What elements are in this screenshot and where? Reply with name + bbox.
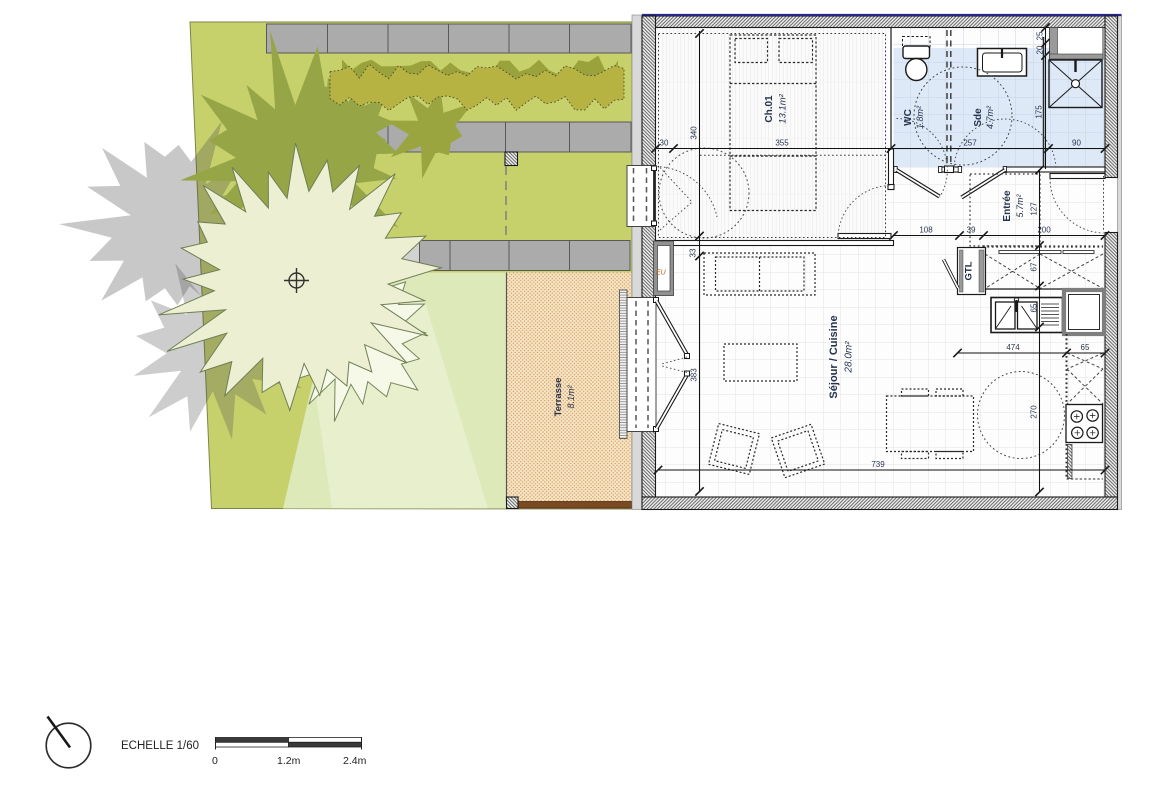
svg-text:28.0m²: 28.0m² (844, 341, 855, 374)
svg-text:20: 20 (1036, 45, 1045, 54)
svg-text:257: 257 (963, 139, 977, 148)
svg-text:8.1m²: 8.1m² (566, 384, 576, 408)
svg-text:0: 0 (212, 755, 218, 767)
svg-text:Terrasse: Terrasse (553, 378, 564, 417)
svg-text:90: 90 (1072, 139, 1081, 148)
svg-text:383: 383 (690, 368, 699, 382)
svg-text:340: 340 (690, 126, 699, 140)
svg-text:5.7m²: 5.7m² (1015, 193, 1025, 217)
svg-text:175: 175 (1035, 105, 1044, 119)
svg-text:474: 474 (1006, 343, 1020, 352)
svg-text:33: 33 (689, 248, 698, 257)
svg-text:67: 67 (1030, 262, 1039, 271)
svg-text:13.1m²: 13.1m² (778, 93, 789, 123)
svg-text:270: 270 (1030, 405, 1039, 419)
svg-text:1.2m: 1.2m (277, 755, 301, 767)
svg-text:65: 65 (1081, 343, 1090, 352)
svg-text:Entrée: Entrée (1002, 190, 1013, 222)
svg-text:2.4m: 2.4m (343, 755, 367, 767)
svg-text:127: 127 (1030, 202, 1039, 216)
svg-text:65: 65 (1030, 303, 1039, 312)
svg-text:GTL: GTL (964, 261, 975, 280)
svg-text:739: 739 (871, 460, 885, 469)
svg-text:Sde: Sde (973, 108, 984, 127)
svg-text:25: 25 (1036, 31, 1045, 40)
svg-text:4.7m²: 4.7m² (985, 105, 995, 129)
svg-text:ECHELLE 1/60: ECHELLE 1/60 (121, 740, 199, 752)
svg-text:Séjour / Cuisine: Séjour / Cuisine (828, 315, 840, 398)
svg-text:1.8m²: 1.8m² (915, 105, 925, 129)
svg-text:355: 355 (775, 139, 789, 148)
svg-text:200: 200 (1037, 226, 1051, 235)
svg-text:EU: EU (656, 270, 667, 277)
svg-text:39: 39 (967, 226, 976, 235)
svg-text:108: 108 (919, 226, 933, 235)
svg-text:30: 30 (660, 139, 669, 148)
svg-text:Ch.01: Ch.01 (764, 95, 775, 123)
svg-text:WC: WC (903, 109, 914, 126)
